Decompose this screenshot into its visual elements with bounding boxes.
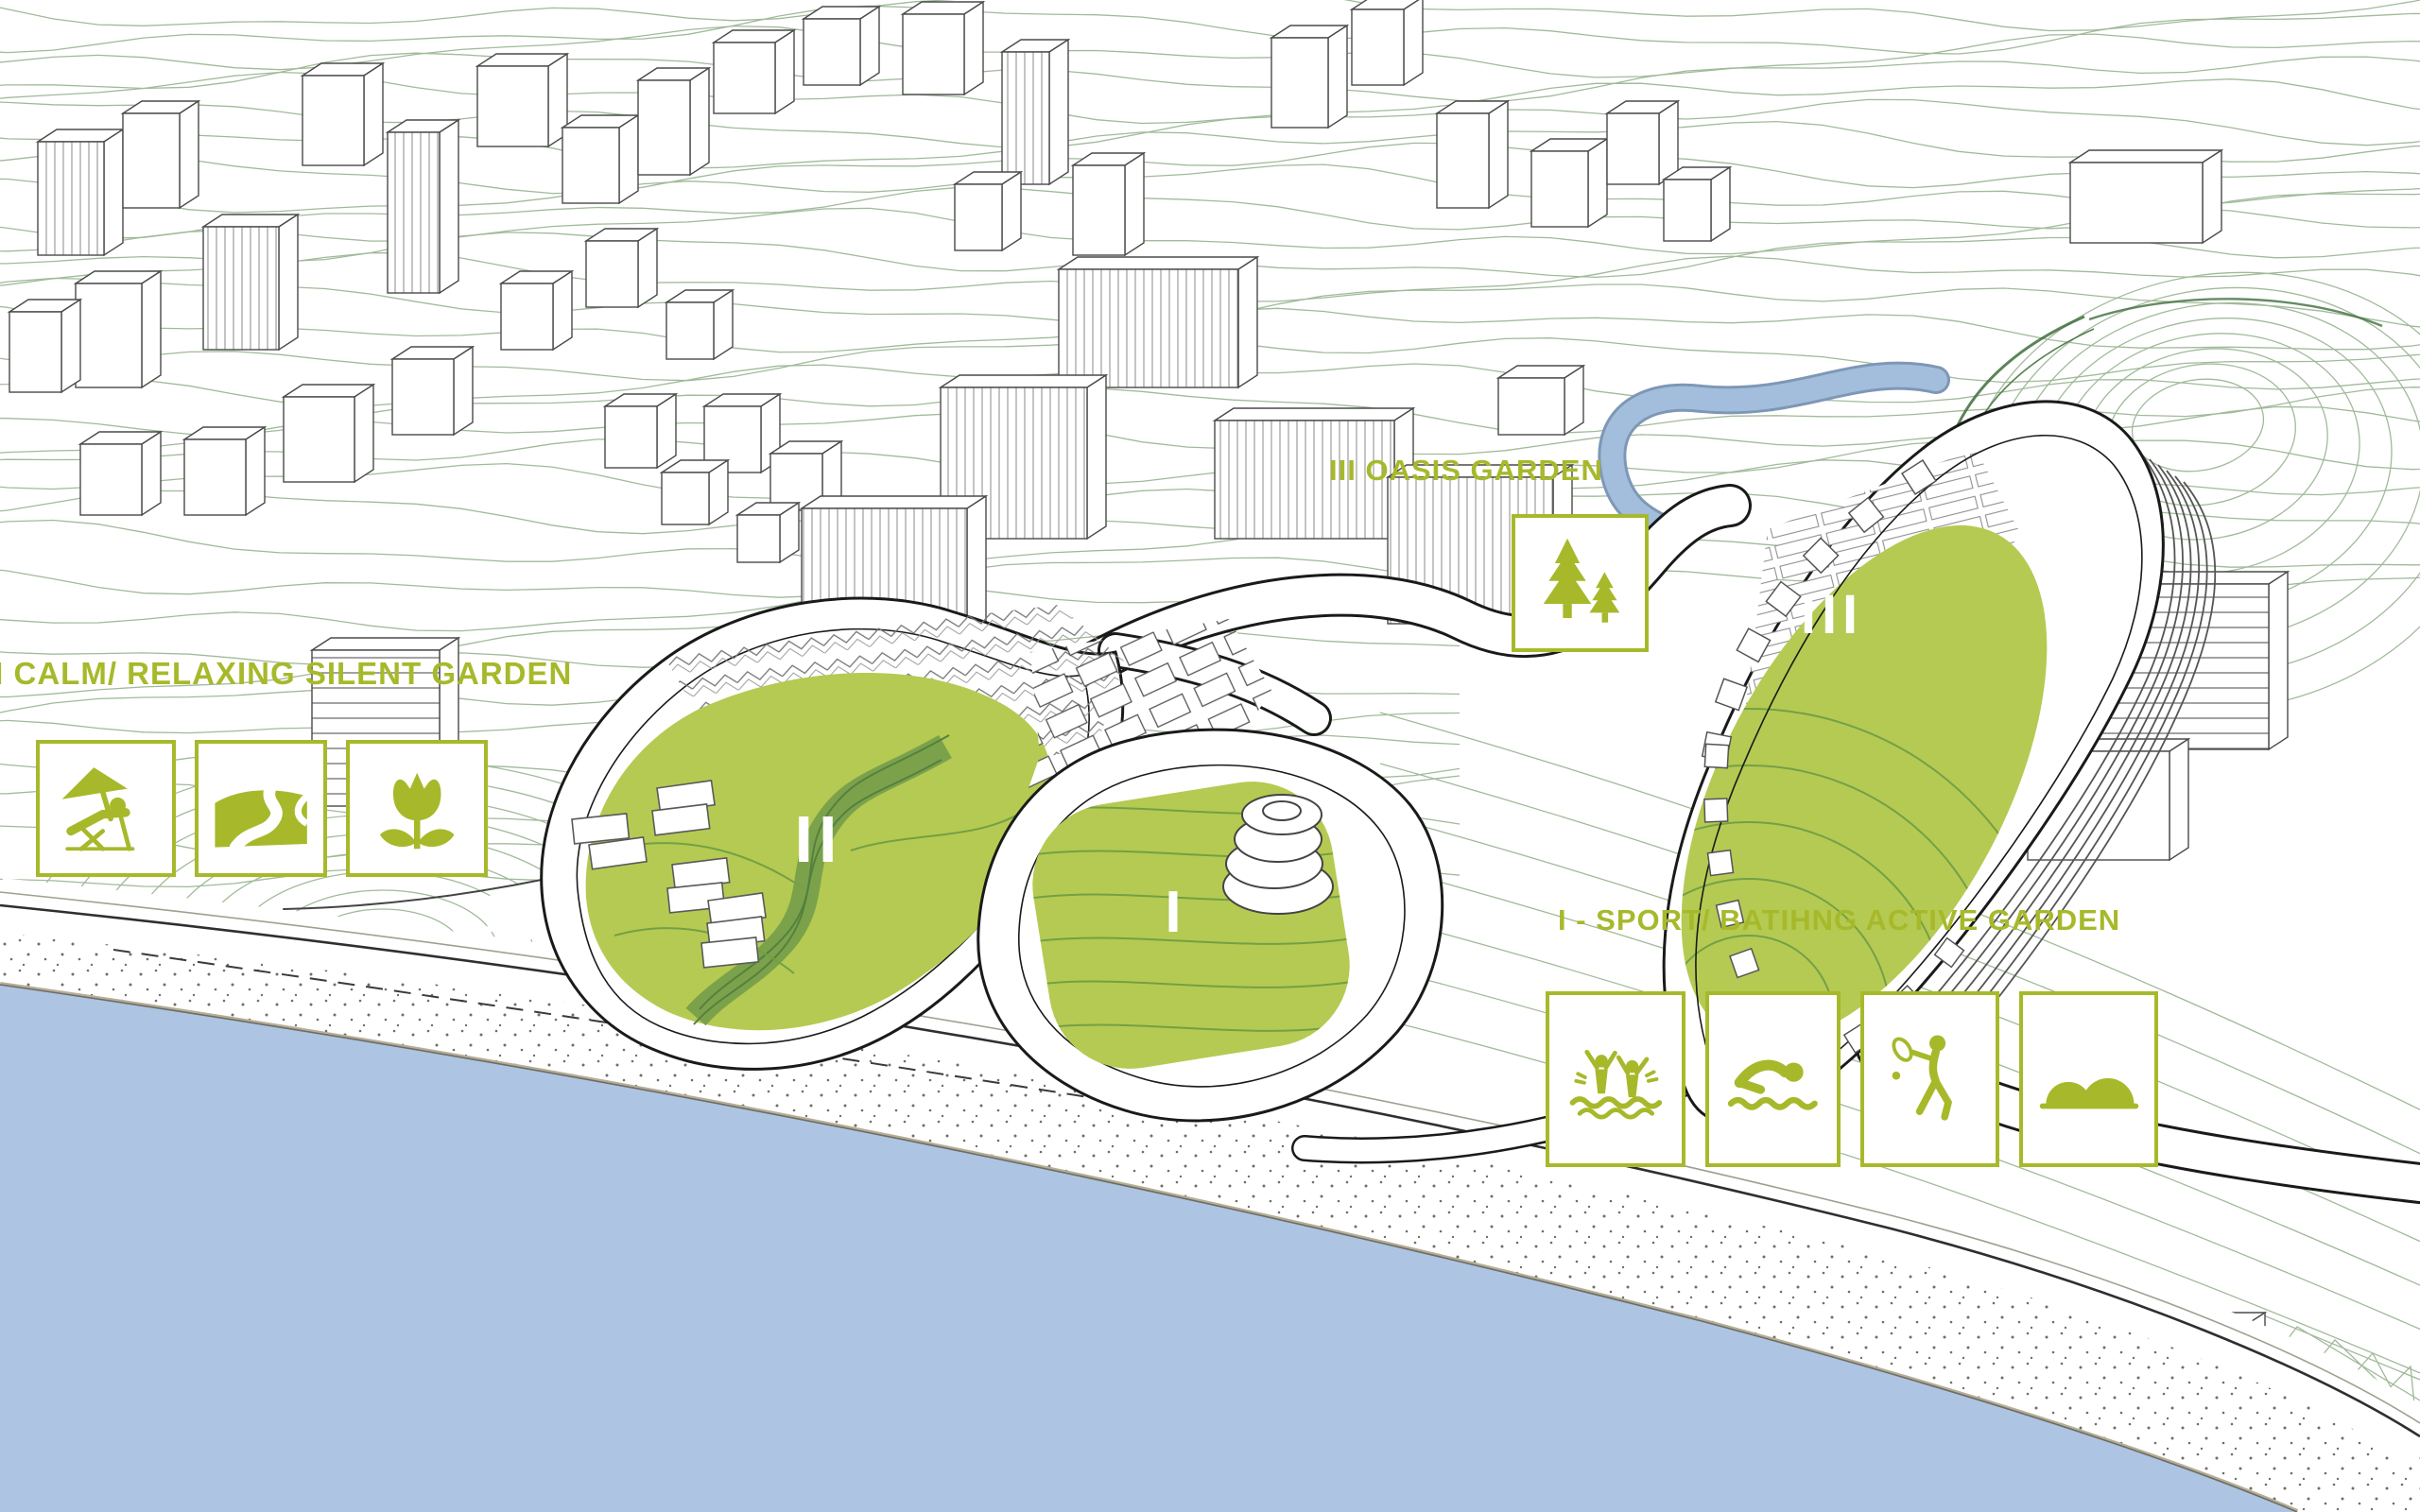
legend-box	[1546, 991, 1685, 1167]
garden-ii-numeral: II	[795, 802, 843, 876]
garden-iii-label: III OASIS GARDEN	[1329, 454, 1603, 488]
water-play-icon	[1562, 1010, 1670, 1148]
garden-iii-numeral: III	[1801, 584, 1863, 645]
legend-box	[346, 740, 488, 877]
tennis-icon	[1876, 1010, 1984, 1148]
legend-calm-garden	[36, 740, 488, 877]
garden-ii-label: II CALM/ RELAXING SILENT GARDEN	[0, 656, 572, 692]
garden-i-numeral: I	[1165, 880, 1181, 945]
legend-box	[1512, 514, 1649, 652]
legend-sport-garden	[1546, 991, 2158, 1167]
legend-box	[36, 740, 176, 877]
legend-box	[1705, 991, 1841, 1167]
legend-box	[2019, 991, 2158, 1167]
flower-icon	[362, 755, 472, 861]
legend-box	[1860, 991, 1999, 1167]
winding-path-icon	[210, 755, 312, 861]
masterplan-diagram: II I III II CALM/ RELAXING SILENT GARDEN…	[0, 0, 2420, 1512]
legend-oasis-garden	[1512, 514, 1649, 652]
swimming-icon	[1720, 1010, 1825, 1148]
garden-i-label: I - SPORT/ BATIHNG ACTIVE GARDEN	[1558, 903, 2120, 937]
legend-box	[195, 740, 327, 877]
dunes-icon	[2035, 1010, 2143, 1148]
beach-lounger-icon	[52, 755, 161, 861]
trees-icon	[1527, 529, 1633, 636]
